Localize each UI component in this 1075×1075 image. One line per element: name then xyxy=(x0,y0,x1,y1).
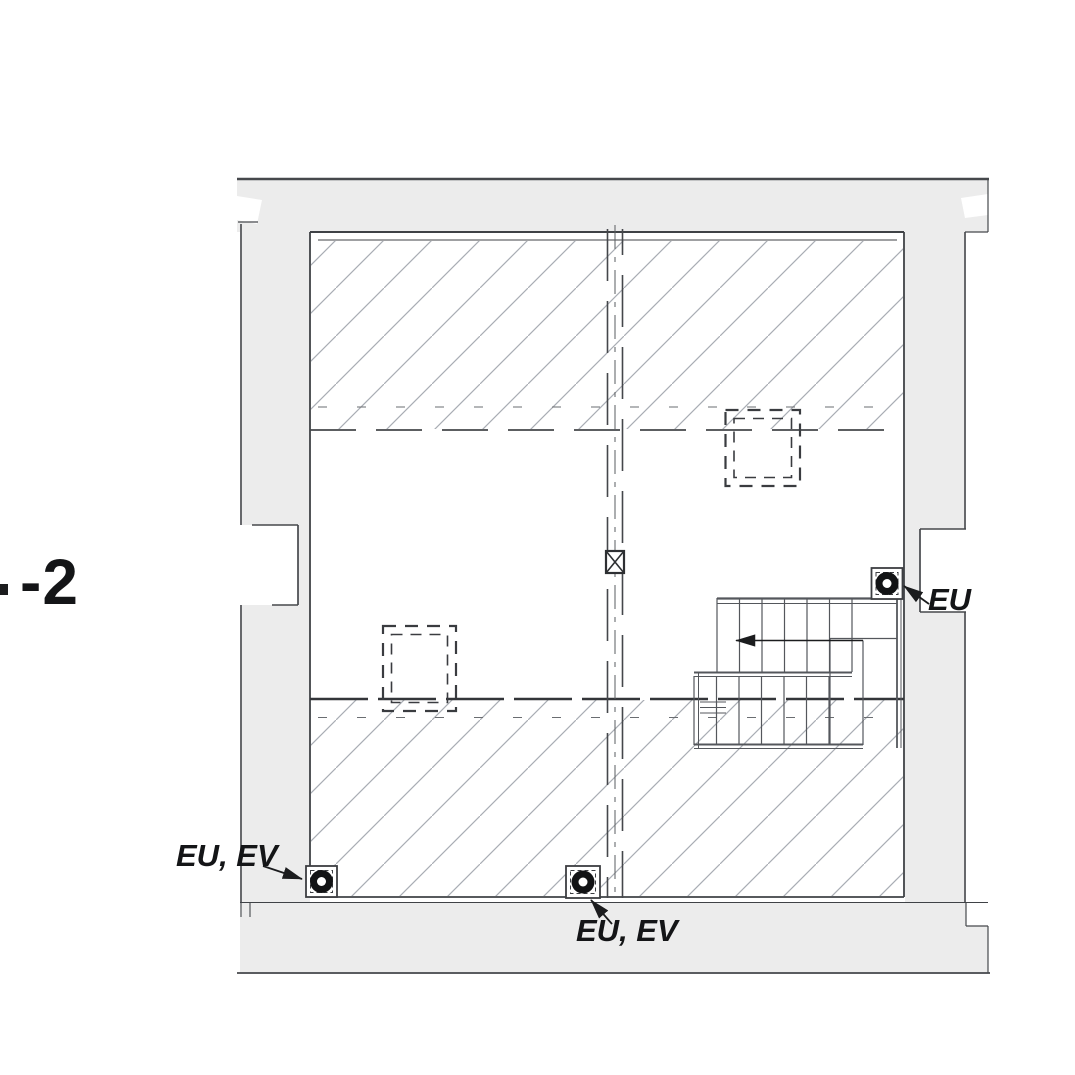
clipped-character-fragment xyxy=(0,584,8,595)
floor-plan-drawing xyxy=(0,0,1075,1075)
shaft-x-symbol xyxy=(606,551,624,573)
drain-symbol-bottom-center xyxy=(566,866,600,898)
drain-label-bottom-center: EU, EV xyxy=(576,913,678,949)
level-label: -2 xyxy=(20,546,79,618)
drain-label-bottom-left: EU, EV xyxy=(176,838,278,874)
drain-label-top-right: EU xyxy=(928,582,971,618)
bottom-hatch-region xyxy=(311,700,903,896)
floor-plan-sheet: -2 EU EU, EV EU, EV xyxy=(0,0,1075,1075)
drain-symbol-bottom-left xyxy=(306,866,337,897)
drain-symbol-top-right xyxy=(872,568,903,599)
